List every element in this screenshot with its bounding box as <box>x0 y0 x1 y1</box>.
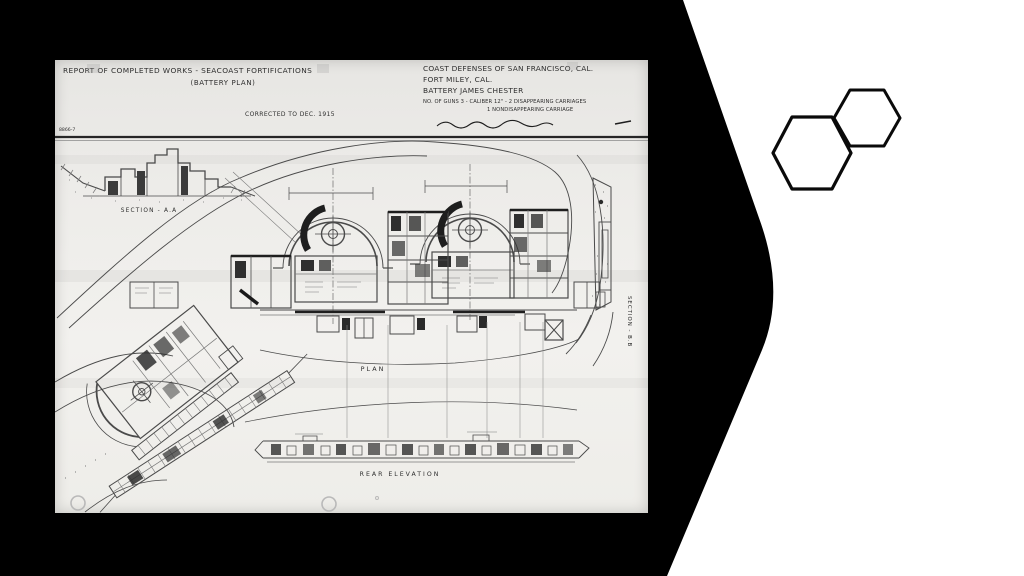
title-smudge-3 <box>567 62 578 70</box>
signature-date-mark <box>615 121 631 124</box>
armament-line-1: NO. OF GUNS 3 - CALIBER 12" - 2 DISAPPEA… <box>423 99 586 105</box>
contour-lines <box>55 141 603 512</box>
hexagon-decoration-small <box>834 90 900 146</box>
battery-plan-subtitle: (BATTERY PLAN) <box>191 79 256 87</box>
dimension-lines <box>225 172 507 242</box>
corrected-note: CORRECTED TO DEC. 1915 <box>245 111 335 118</box>
battery-name-line: BATTERY JAMES CHESTER <box>423 86 524 95</box>
terreplein-lines <box>260 310 577 340</box>
dotted-path <box>65 454 108 478</box>
section-aa-label: SECTION - A.A <box>121 208 178 214</box>
title-smudge-2 <box>317 64 329 73</box>
battery-plan-sheet: REPORT OF COMPLETED WORKS - SEACOAST FOR… <box>55 60 648 513</box>
title-block: REPORT OF COMPLETED WORKS - SEACOAST FOR… <box>55 62 648 141</box>
plan-label: PLAN <box>361 365 386 373</box>
armament-line-2: 1 NONDISAPPEARING CARRIAGE <box>487 107 573 113</box>
battery-plan-drawing: REPORT OF COMPLETED WORKS - SEACOAST FOR… <box>55 60 648 513</box>
fort-line: FORT MILEY, CAL. <box>423 75 493 84</box>
presentation-slide: REPORT OF COMPLETED WORKS - SEACOAST FOR… <box>0 0 1024 576</box>
report-title: REPORT OF COMPLETED WORKS - SEACOAST FOR… <box>63 66 312 75</box>
gun-emplacement-2 <box>410 164 530 320</box>
title-smudge-1 <box>87 64 100 73</box>
section-bb-label: SECTION - B.B <box>626 296 632 347</box>
rear-elevation-drawing: REAR ELEVATION <box>255 432 589 478</box>
signature-mark <box>437 120 553 128</box>
magazine-rooms <box>130 210 600 308</box>
sheet-number: 8866-7 <box>59 127 75 133</box>
rear-elevation-label: REAR ELEVATION <box>360 471 441 478</box>
